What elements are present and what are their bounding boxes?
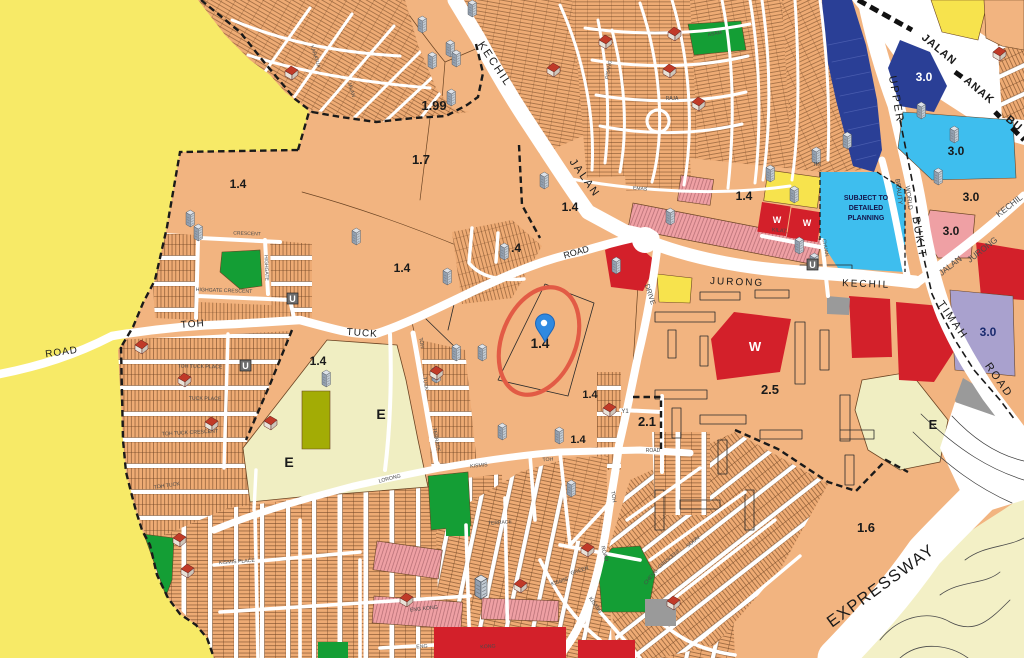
svg-text:JURONG: JURONG	[710, 276, 765, 289]
svg-text:3.0: 3.0	[963, 190, 980, 204]
svg-text:TOH: TOH	[542, 457, 554, 464]
svg-text:3.0: 3.0	[916, 70, 933, 84]
svg-text:U: U	[289, 294, 296, 304]
svg-text:PLANNING: PLANNING	[848, 215, 885, 222]
svg-text:ENG: ENG	[416, 644, 428, 651]
svg-text:E: E	[929, 417, 938, 432]
svg-text:ROAD: ROAD	[646, 448, 661, 454]
svg-text:TIN: TIN	[813, 162, 821, 168]
svg-text:U: U	[242, 361, 249, 371]
svg-text:SUBJECT TO: SUBJECT TO	[844, 195, 889, 202]
svg-text:1.99: 1.99	[421, 98, 446, 113]
svg-text:1.4: 1.4	[230, 177, 247, 191]
svg-text:3.0: 3.0	[943, 224, 960, 238]
svg-text:TOH: TOH	[181, 318, 206, 331]
svg-text:TUCK: TUCK	[346, 327, 378, 340]
svg-text:W: W	[803, 218, 812, 228]
svg-text:RAJA: RAJA	[666, 96, 679, 102]
svg-text:1.4: 1.4	[736, 189, 753, 203]
svg-text:TOH TUCK PLACE: TOH TUCK PLACE	[178, 364, 223, 371]
svg-text:1.4: 1.4	[394, 261, 411, 275]
svg-text:KONG: KONG	[480, 643, 496, 650]
svg-text:.4: .4	[511, 241, 521, 255]
svg-text:2.5: 2.5	[761, 382, 779, 397]
svg-text:3.0: 3.0	[980, 325, 997, 339]
svg-text:W: W	[749, 339, 762, 354]
svg-text:CRESCENT: CRESCENT	[233, 231, 261, 238]
svg-text:1.7: 1.7	[412, 152, 430, 167]
svg-text:HIGHGATE: HIGHGATE	[263, 255, 270, 282]
svg-text:DETAILED: DETAILED	[849, 205, 883, 212]
svg-text:1.4: 1.4	[562, 200, 579, 214]
svg-text:1.6: 1.6	[857, 520, 875, 535]
svg-text:U: U	[809, 260, 816, 270]
svg-text:3.0: 3.0	[948, 144, 965, 158]
svg-text:TUCK PLACE: TUCK PLACE	[189, 396, 222, 403]
svg-text:E: E	[284, 454, 293, 470]
svg-text:Y1: Y1	[621, 409, 629, 415]
svg-text:W: W	[773, 215, 782, 225]
svg-text:1.4: 1.4	[310, 354, 327, 368]
svg-text:1.4: 1.4	[570, 434, 586, 446]
svg-text:E: E	[376, 406, 385, 422]
svg-text:KECHIL: KECHIL	[842, 278, 890, 291]
svg-text:1.4: 1.4	[582, 389, 598, 401]
svg-text:2.1: 2.1	[638, 414, 656, 429]
